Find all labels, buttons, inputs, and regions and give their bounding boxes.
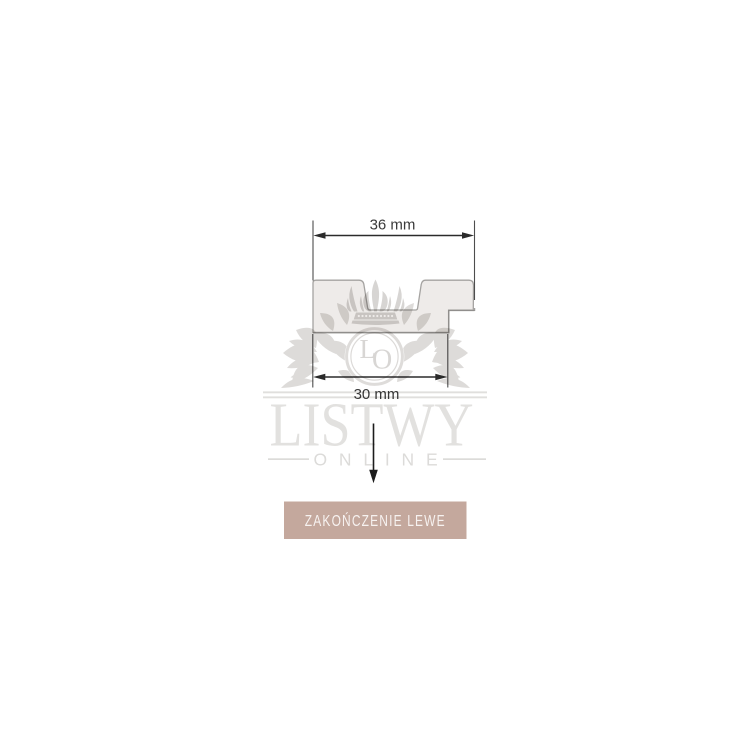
svg-text:O: O <box>372 345 392 376</box>
svg-text:ONLINE: ONLINE <box>314 450 450 470</box>
svg-text:ZAKOŃCZENIE LEWE: ZAKOŃCZENIE LEWE <box>305 513 446 530</box>
svg-text:36 mm: 36 mm <box>370 217 416 234</box>
